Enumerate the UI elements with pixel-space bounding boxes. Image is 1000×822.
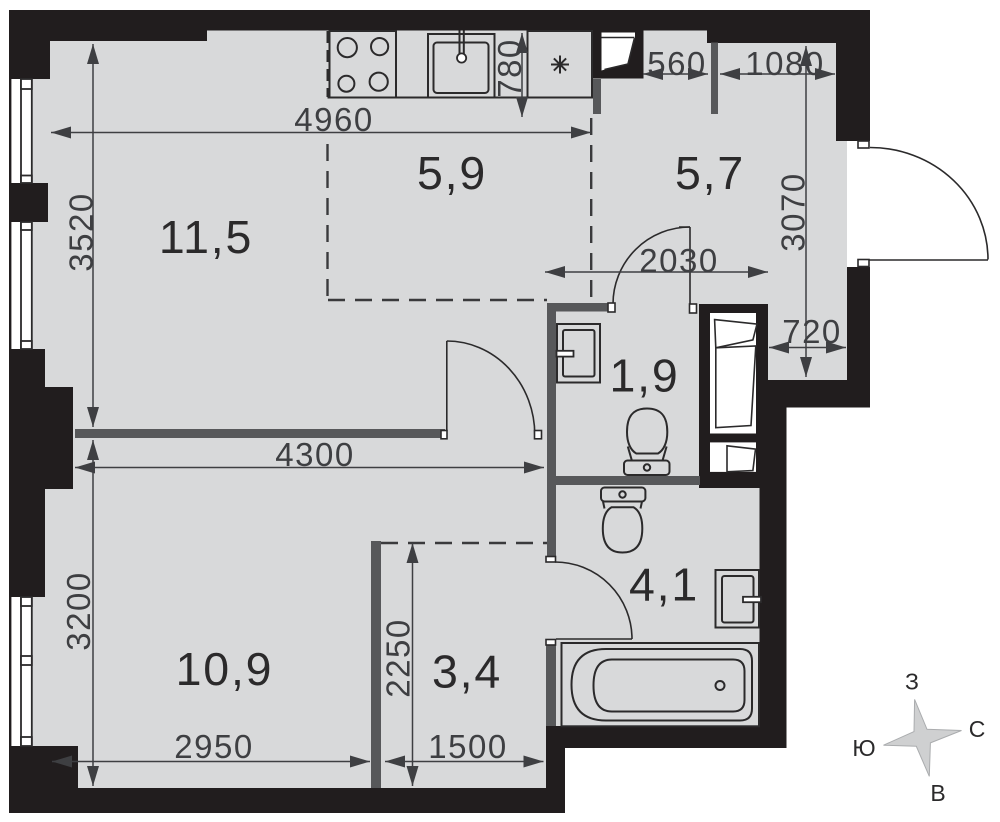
svg-text:3520: 3520	[63, 192, 100, 271]
svg-text:2250: 2250	[380, 618, 417, 697]
svg-text:1,9: 1,9	[609, 350, 679, 402]
svg-text:Ю: Ю	[852, 735, 875, 761]
svg-text:11,5: 11,5	[159, 211, 253, 263]
svg-text:С: С	[969, 716, 986, 742]
svg-text:2030: 2030	[639, 242, 718, 279]
svg-text:1080: 1080	[745, 45, 824, 82]
svg-text:3200: 3200	[60, 571, 97, 650]
svg-text:5,9: 5,9	[417, 147, 487, 199]
svg-text:3070: 3070	[775, 172, 812, 251]
svg-text:5,7: 5,7	[675, 147, 745, 199]
svg-text:10,9: 10,9	[176, 643, 274, 695]
svg-text:3,4: 3,4	[432, 646, 502, 698]
svg-text:В: В	[930, 780, 945, 806]
svg-text:4960: 4960	[294, 101, 373, 138]
svg-text:560: 560	[647, 45, 707, 82]
svg-text:З: З	[905, 669, 919, 695]
svg-text:4300: 4300	[275, 436, 354, 473]
svg-text:2950: 2950	[174, 728, 253, 765]
svg-text:780: 780	[491, 38, 528, 98]
svg-text:1500: 1500	[428, 728, 507, 765]
svg-text:720: 720	[782, 313, 842, 350]
svg-text:4,1: 4,1	[629, 559, 699, 611]
